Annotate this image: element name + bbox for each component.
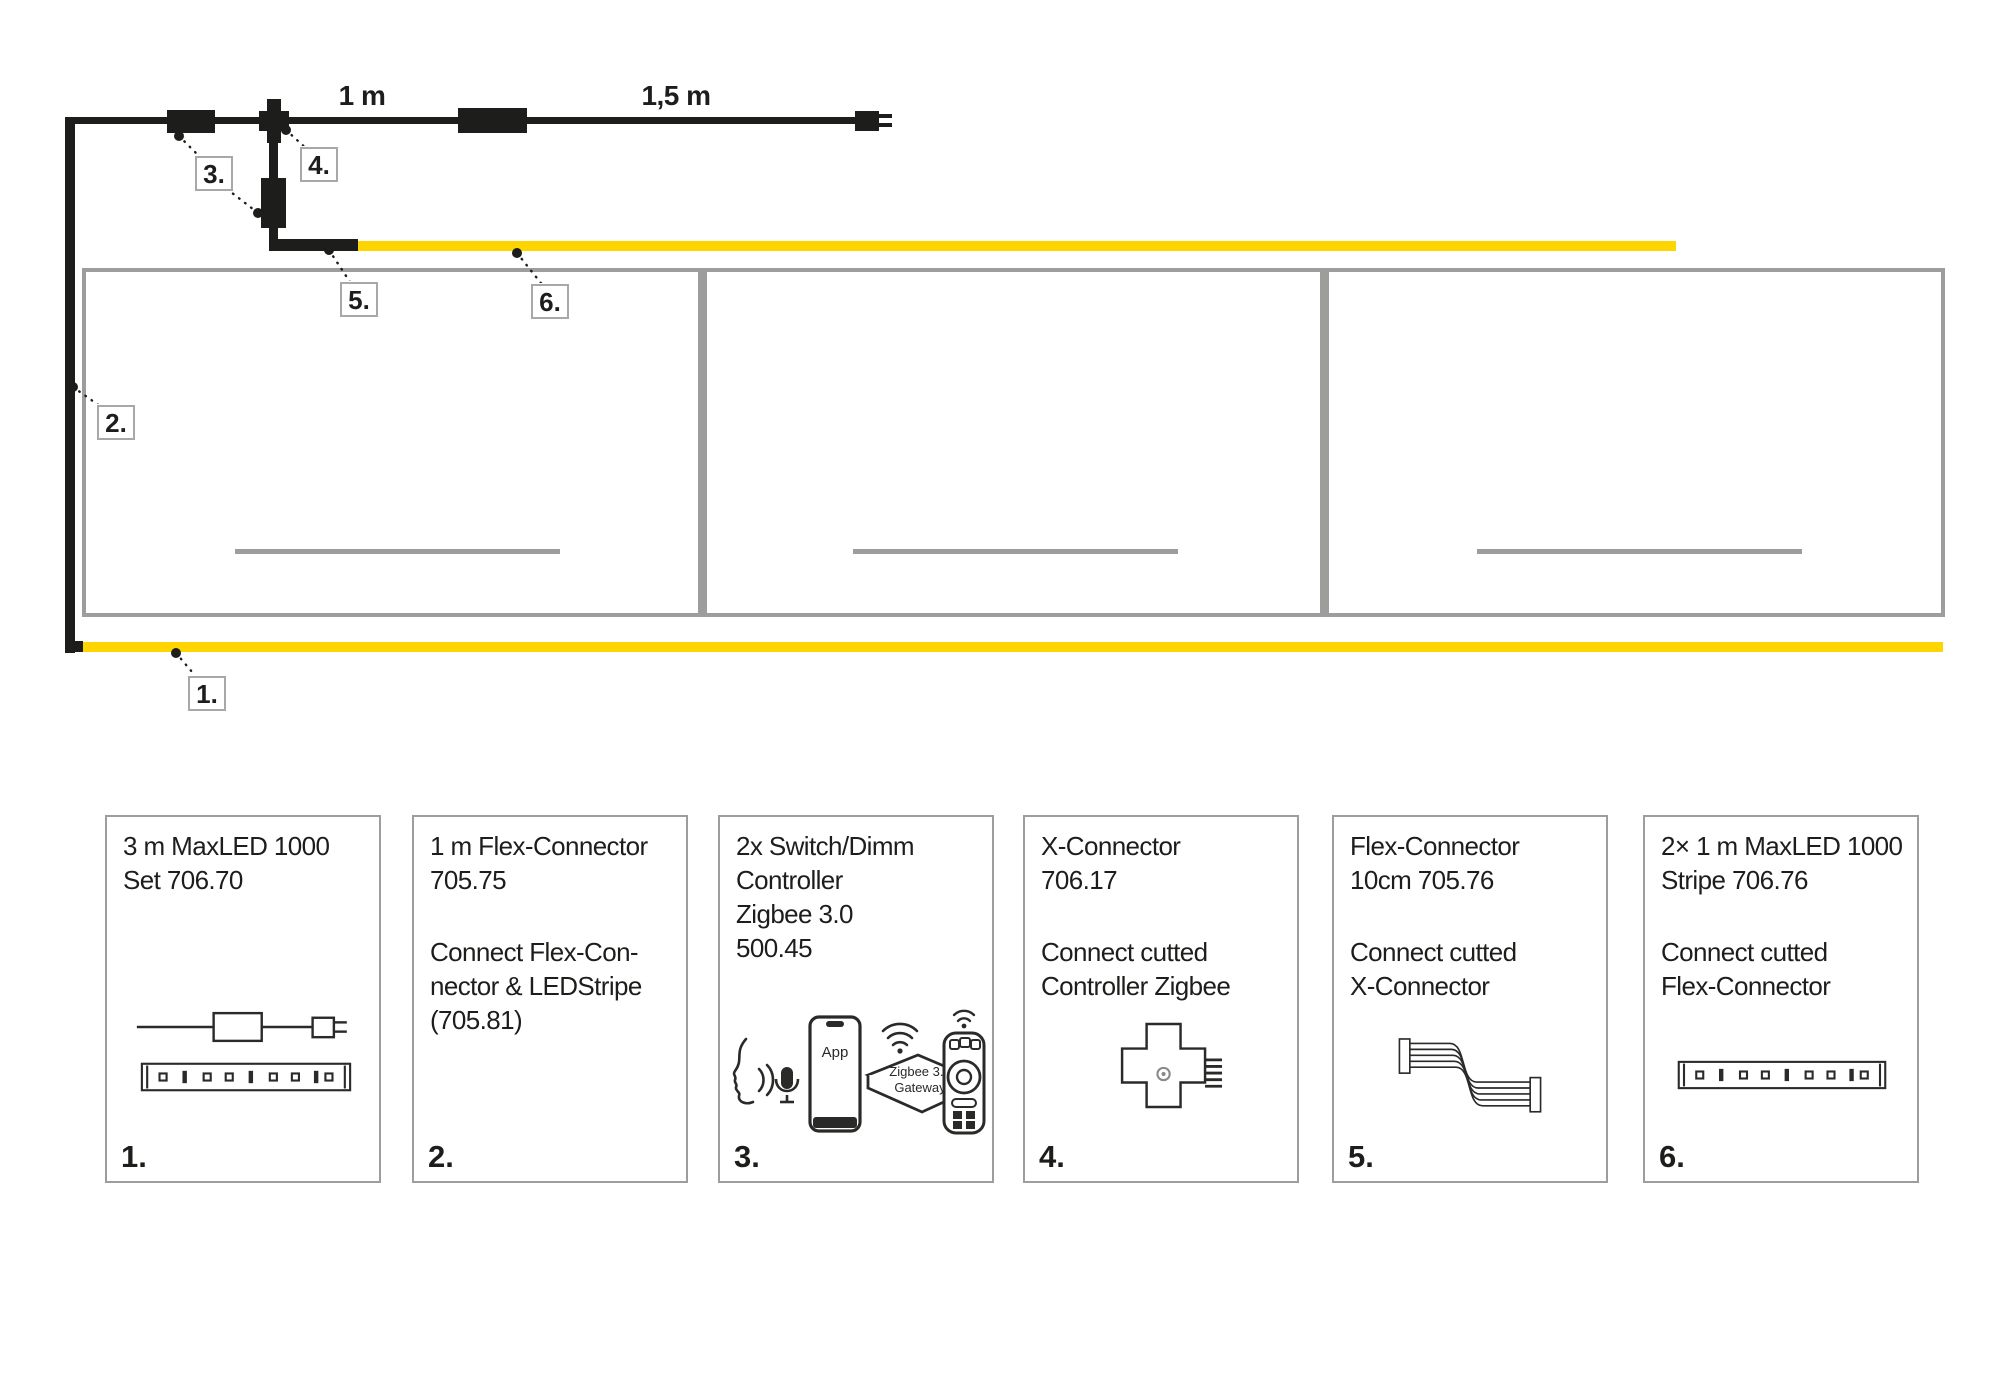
legend-4-number: 4. [1039, 1139, 1065, 1175]
legend-item-2: 1 m Flex-Connector 705.75 Connect Flex-C… [412, 815, 688, 1183]
wifi-icon [883, 1024, 917, 1045]
gateway-label-2: Gateway [894, 1080, 946, 1095]
wifi-icon [954, 1011, 974, 1021]
legend-2-number: 2. [428, 1139, 454, 1175]
legend-6-title: 2× 1 m MaxLED 1000 Stripe 706.76 [1661, 829, 1909, 897]
microphone-icon [776, 1067, 798, 1102]
legend-item-5: Flex-Connector 10cm 705.76 Connect cutte… [1332, 815, 1608, 1183]
legend-2-description: Connect Flex-Con- nector & LEDStripe (70… [430, 935, 678, 1037]
legend-5-description: Connect cutted X-Connector [1350, 935, 1598, 1003]
legend-4-description: Connect cutted Controller Zigbee [1041, 935, 1289, 1003]
callout-4: 4. [300, 147, 338, 182]
callout-2: 2. [97, 405, 135, 440]
callout-1: 1. [188, 676, 226, 711]
legend-5-number: 5. [1348, 1139, 1374, 1175]
legend-2-title: 1 m Flex-Connector 705.75 [430, 829, 678, 897]
zigbee-control-options-icon: App Zigbee 3.0 Gateway [726, 1009, 990, 1147]
power-cable-driver-plug-icon [135, 1002, 357, 1052]
legend-4-title: X-Connector 706.17 [1041, 829, 1289, 897]
led-stripe-icon [1677, 1060, 1887, 1090]
remote-control-icon [944, 1011, 984, 1133]
app-label: App [822, 1044, 849, 1061]
led-stripe-icon [135, 1062, 357, 1092]
legend-6-number: 6. [1659, 1139, 1685, 1175]
callout-3: 3. [195, 156, 233, 191]
voice-control-icon [734, 1039, 773, 1103]
legend-item-6: 2× 1 m MaxLED 1000 Stripe 706.76 Connect… [1643, 815, 1919, 1183]
legend-3-number: 3. [734, 1139, 760, 1175]
callout-5: 5. [340, 282, 378, 317]
legend-1-title: 3 m MaxLED 1000 Set 706.70 [123, 829, 371, 897]
installation-diagram-page: 1 m 1,5 m 1. 2. 3. 4. 5. 6. 3 m MaxLED [0, 0, 2000, 1376]
legend-5-title: Flex-Connector 10cm 705.76 [1350, 829, 1598, 897]
smartphone-app-icon: App [810, 1017, 860, 1131]
legend-item-3: 2x Switch/Dimm Controller Zigbee 3.0 500… [718, 815, 994, 1183]
legend-item-1: 3 m MaxLED 1000 Set 706.70 [105, 815, 381, 1183]
callout-anchor-dots [68, 125, 522, 658]
x-connector-icon [1107, 1022, 1239, 1126]
legend-1-number: 1. [121, 1139, 147, 1175]
gateway-label-1: Zigbee 3.0 [889, 1064, 950, 1079]
legend-3-title: 2x Switch/Dimm Controller Zigbee 3.0 500… [736, 829, 984, 965]
legend-item-4: X-Connector 706.17 Connect cutted Contro… [1023, 815, 1299, 1183]
legend-6-description: Connect cutted Flex-Connector [1661, 935, 1909, 1003]
flex-ribbon-connector-icon [1392, 1035, 1548, 1115]
callout-6: 6. [531, 284, 569, 319]
